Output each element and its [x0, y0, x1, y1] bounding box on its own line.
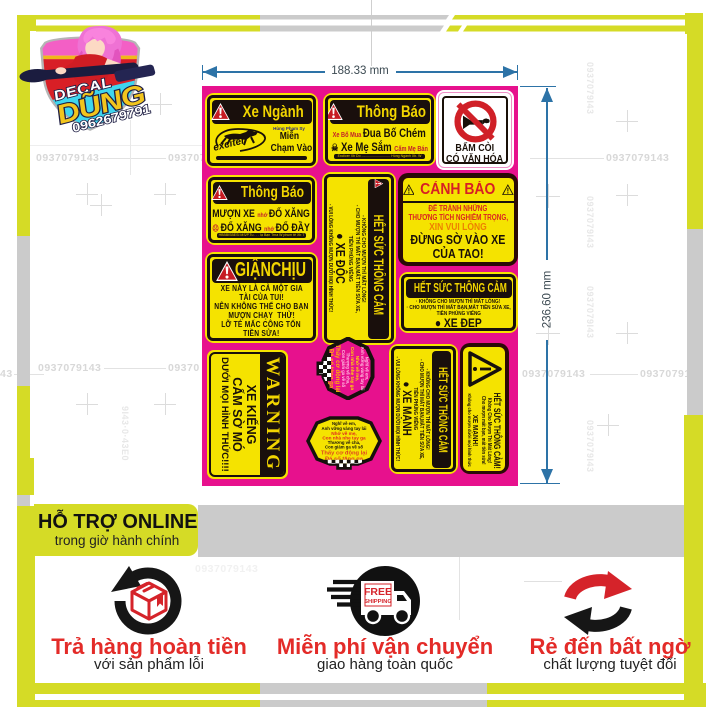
- svg-text:Thấy cơ động lại: Thấy cơ động lại: [334, 345, 341, 393]
- svg-text:Nghĩ về em,: Nghĩ về em,: [365, 357, 370, 381]
- svg-text:Thấy cơ động lại: Thấy cơ động lại: [321, 450, 368, 457]
- svg-text:FREE: FREE: [364, 586, 392, 598]
- svg-text:SHIPPING: SHIPPING: [364, 599, 392, 605]
- svg-text:Con giảm ga về số: Con giảm ga về số: [325, 444, 363, 449]
- svg-text:Con giảm ga về số: Con giảm ga về số: [341, 350, 346, 387]
- svg-text:Nhớ về mẹ,: Nhớ về mẹ,: [355, 356, 360, 381]
- svg-text:Thương về cha,: Thương về cha,: [346, 353, 351, 385]
- svg-text:Con nhà nhẹ tay ga: Con nhà nhẹ tay ga: [350, 347, 355, 391]
- svg-text:Anh vững vàng tay lái: Anh vững vàng tay lái: [360, 347, 365, 391]
